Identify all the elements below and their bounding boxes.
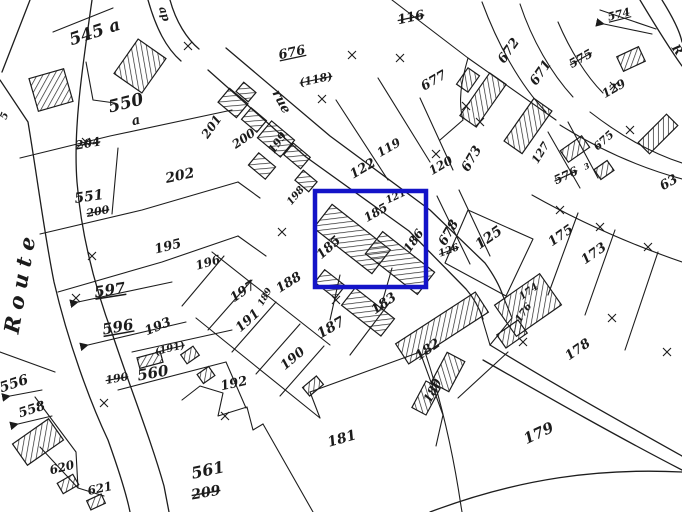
hatched-building: [303, 376, 324, 396]
road-edge-line: [662, 0, 682, 42]
parcel-label-179: 179: [521, 418, 557, 448]
parcel-label-191: 191: [233, 306, 263, 335]
road-label-rue: rue: [269, 88, 294, 117]
boundary-tick: [432, 150, 440, 158]
old-parcel-label-118: (118): [298, 70, 333, 90]
old-parcel-label-576: 576: [551, 164, 580, 188]
parcel-label-188: 188: [274, 269, 305, 296]
old-parcel-label-575: 575: [566, 46, 595, 71]
parcel-boundary-line: [196, 318, 320, 418]
parcel-label-197: 197: [228, 278, 259, 306]
hatched-building: [457, 68, 480, 92]
parcel-label-196: 196: [194, 252, 223, 273]
road-edge-line: [170, 0, 199, 49]
parcel-boundary-line: [482, 318, 490, 345]
parcel-label-621: 621: [86, 479, 113, 498]
boundary-tick: [184, 42, 192, 50]
parcel-label-186: 186: [401, 226, 427, 255]
parcel-label-187: 187: [314, 314, 348, 343]
old-parcel-label-204: 204: [73, 134, 101, 152]
parcel-label-125: 125: [472, 223, 505, 253]
old-parcel-label-209: 209: [189, 483, 222, 504]
parcel-label-202: 202: [163, 165, 196, 187]
parcel-label-193: 193: [143, 315, 174, 339]
boundary-tick: [221, 412, 229, 420]
hatched-building: [29, 69, 73, 112]
old-parcel-label-190: 190: [104, 370, 129, 387]
parcel-boundary-line: [238, 182, 260, 198]
parcel-label-597: 597: [93, 279, 127, 302]
parcel-label-129: 129: [599, 76, 628, 101]
parcel-label-175: 175: [546, 222, 577, 250]
hatched-building: [617, 47, 646, 72]
road-edge-line: [2, 0, 30, 72]
cadastral-map-page: RouterueapR5545 a550a5512021951961975975…: [0, 0, 682, 512]
boundary-tick: [608, 314, 616, 322]
hatched-building: [396, 292, 489, 364]
parcel-label-192: 192: [219, 374, 249, 394]
boundary-tick: [348, 51, 356, 59]
hatched-building: [315, 270, 345, 299]
road-label-5: 5: [0, 111, 11, 121]
parcel-label-173: 173: [579, 240, 610, 268]
parcel-boundary-line: [238, 236, 266, 256]
boundary-tick: [556, 206, 564, 214]
parcel-label-a: a: [130, 113, 142, 130]
parcel-boundary-line: [520, 4, 573, 97]
parcel-label-178: 178: [563, 336, 594, 364]
parcel-label-672: 672: [495, 36, 523, 67]
parcel-boundary-line: [625, 252, 658, 350]
hatched-building: [57, 474, 79, 493]
parcel-label-127: 127: [529, 139, 552, 166]
cadastral-map: RouterueapR5545 a550a5512021951961975975…: [0, 0, 682, 512]
parcel-label-671: 671: [527, 58, 555, 89]
old-parcel-label-200: 200: [84, 203, 110, 220]
parcel-label-550: 550: [106, 89, 145, 117]
hatched-building: [638, 114, 678, 154]
parcel-label-676: 676: [277, 43, 307, 63]
parcel-label-574: 574: [606, 5, 631, 23]
parcel-label-119: 119: [374, 135, 403, 160]
road-label-R: R: [668, 41, 682, 58]
boundary-tick: [100, 399, 108, 407]
hatched-building: [114, 39, 166, 93]
road-label-ap: ap: [156, 5, 173, 23]
old-parcel-label-116: 116: [396, 8, 426, 28]
road-label-Route: Route: [0, 228, 41, 337]
parcel-label-195: 195: [153, 236, 183, 257]
parcel-label-120: 120: [426, 153, 455, 178]
parcel-boundary-line: [263, 424, 313, 512]
parcel-label-181: 181: [326, 427, 359, 450]
parcel-boundary-line: [40, 182, 238, 234]
parcel-boundary-line: [310, 352, 420, 392]
boundary-tick: [318, 95, 326, 103]
road-edge-line: [430, 471, 682, 512]
parcel-label-545a: 545 a: [67, 15, 123, 50]
parcel-label-3: 3: [582, 160, 592, 172]
boundary-tick: [663, 348, 671, 356]
parcel-label-673: 673: [459, 143, 486, 174]
parcel-label-185: 185: [361, 200, 390, 225]
boundary-tick: [72, 294, 80, 302]
hatched-building: [248, 153, 275, 179]
parcel-label-122: 122: [347, 156, 378, 183]
parcel-boundary-line: [458, 352, 508, 398]
boundary-tick: [626, 126, 634, 134]
parcel-label-561: 561: [189, 457, 226, 483]
road-edge-line: [490, 345, 682, 456]
parcel-label-677: 677: [418, 68, 449, 95]
road-edge-line: [483, 360, 682, 470]
parcel-boundary-line: [440, 120, 463, 140]
parcel-label-63: 63: [657, 172, 680, 194]
boundary-tick: [396, 54, 404, 62]
parcel-boundary-line: [0, 352, 55, 372]
boundary-tick: [278, 228, 286, 236]
boundary-tick: [519, 338, 527, 346]
parcel-boundary-line: [112, 148, 118, 214]
